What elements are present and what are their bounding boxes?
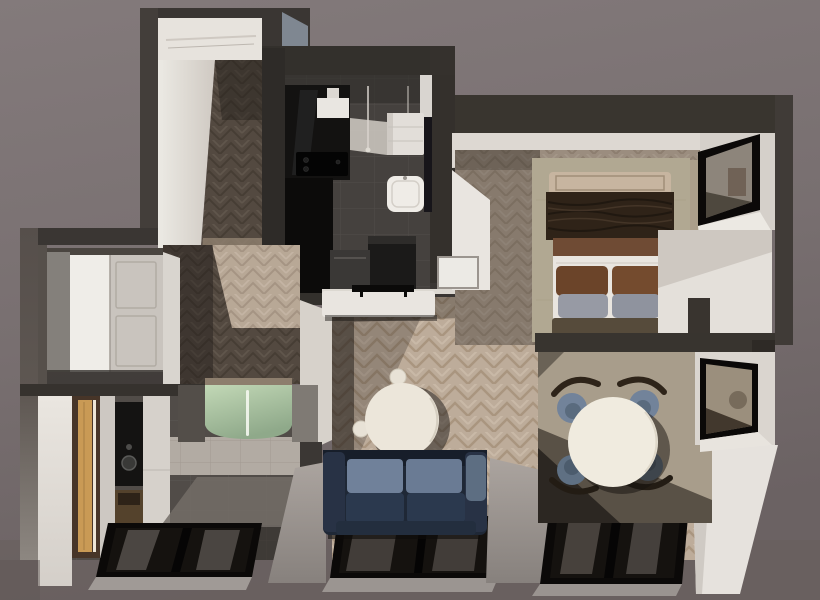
bathroom-west-wall-face [38, 396, 72, 586]
shower-pier-left [178, 385, 205, 442]
sink-faucet [403, 176, 407, 180]
niche-shadow [118, 493, 140, 505]
wardrobe-mirror-panel [70, 255, 110, 372]
bathroom-top-wall [20, 384, 205, 396]
sofa-arm-right-top [466, 455, 486, 501]
pillow-gray-right [612, 294, 660, 318]
pillow-brown-right [612, 266, 664, 296]
pillow-gray-left [558, 294, 608, 318]
sofa-back-cushion-2 [406, 459, 462, 493]
counter-lit-top [350, 118, 387, 155]
dining-window-sill [532, 584, 682, 596]
wardrobe-paneled-door [110, 255, 163, 372]
vanity-faucet-dot [126, 444, 132, 450]
shower-pier-right [292, 385, 318, 442]
sofa-seat-cushion-2 [407, 493, 465, 523]
cooktop [296, 152, 348, 176]
bedroom-top-wall [445, 95, 793, 133]
dark-appliance [368, 236, 416, 292]
window-reflection-chair [728, 168, 746, 196]
kitchen-corner-cabinet [420, 75, 432, 117]
hall-east-jamb [163, 252, 180, 384]
living-window-sill [322, 578, 498, 592]
shower-glass-reflection [246, 390, 249, 436]
cooktop-burner-2 [304, 167, 309, 172]
fridge-side-shade [387, 113, 393, 155]
bathroom-window-sill [88, 577, 252, 590]
corner-shade [0, 560, 40, 600]
tv-foot-2 [404, 292, 407, 297]
sofa-front-edge [336, 521, 476, 535]
range-hood [317, 98, 349, 118]
wardrobe-gray-face [47, 252, 70, 372]
left-exterior-wall-top [140, 8, 158, 230]
stool [390, 369, 406, 385]
sofa-seat-cushion [346, 493, 404, 523]
hallway-wardrobe [38, 245, 300, 384]
wardrobe-side-gap [38, 245, 47, 384]
floor-plan-render [0, 0, 820, 600]
kitchen-top-wall [262, 46, 454, 75]
hall-top-wall [20, 228, 163, 245]
sofa [323, 450, 487, 539]
bedroom-closet-box [438, 257, 478, 288]
led-light-strip [93, 400, 96, 552]
sofa-back-cushion [347, 459, 403, 493]
bedroom-south-wall [535, 333, 775, 352]
sideboard-shadow [325, 315, 437, 321]
floor-plan-svg [0, 0, 820, 600]
round-basin [122, 456, 136, 470]
coffee-table [365, 383, 439, 457]
dining-area [538, 350, 712, 523]
right-exterior-wall [775, 95, 793, 345]
kitchen-backsplash-dark [424, 117, 432, 212]
dark-appliance-top [368, 236, 416, 244]
sofa-arm-left [323, 452, 345, 532]
tv-foot [360, 292, 363, 297]
cooktop-burner-3 [336, 160, 340, 164]
kitchen [285, 75, 432, 293]
pillow-brown-left [556, 266, 608, 296]
dining-east-window [695, 352, 775, 452]
bedroom [438, 133, 775, 364]
bed-duvet-band [553, 238, 667, 258]
media-sideboard [322, 291, 435, 317]
wall-tv [352, 285, 414, 292]
window-reflection-blob [729, 391, 747, 409]
cooktop-burner [304, 158, 309, 163]
wood-cabinet-inner [78, 400, 92, 552]
dining-table [568, 397, 658, 487]
wardrobe-floor-shadow [47, 370, 163, 384]
corridor-floor-shadow [215, 60, 262, 120]
